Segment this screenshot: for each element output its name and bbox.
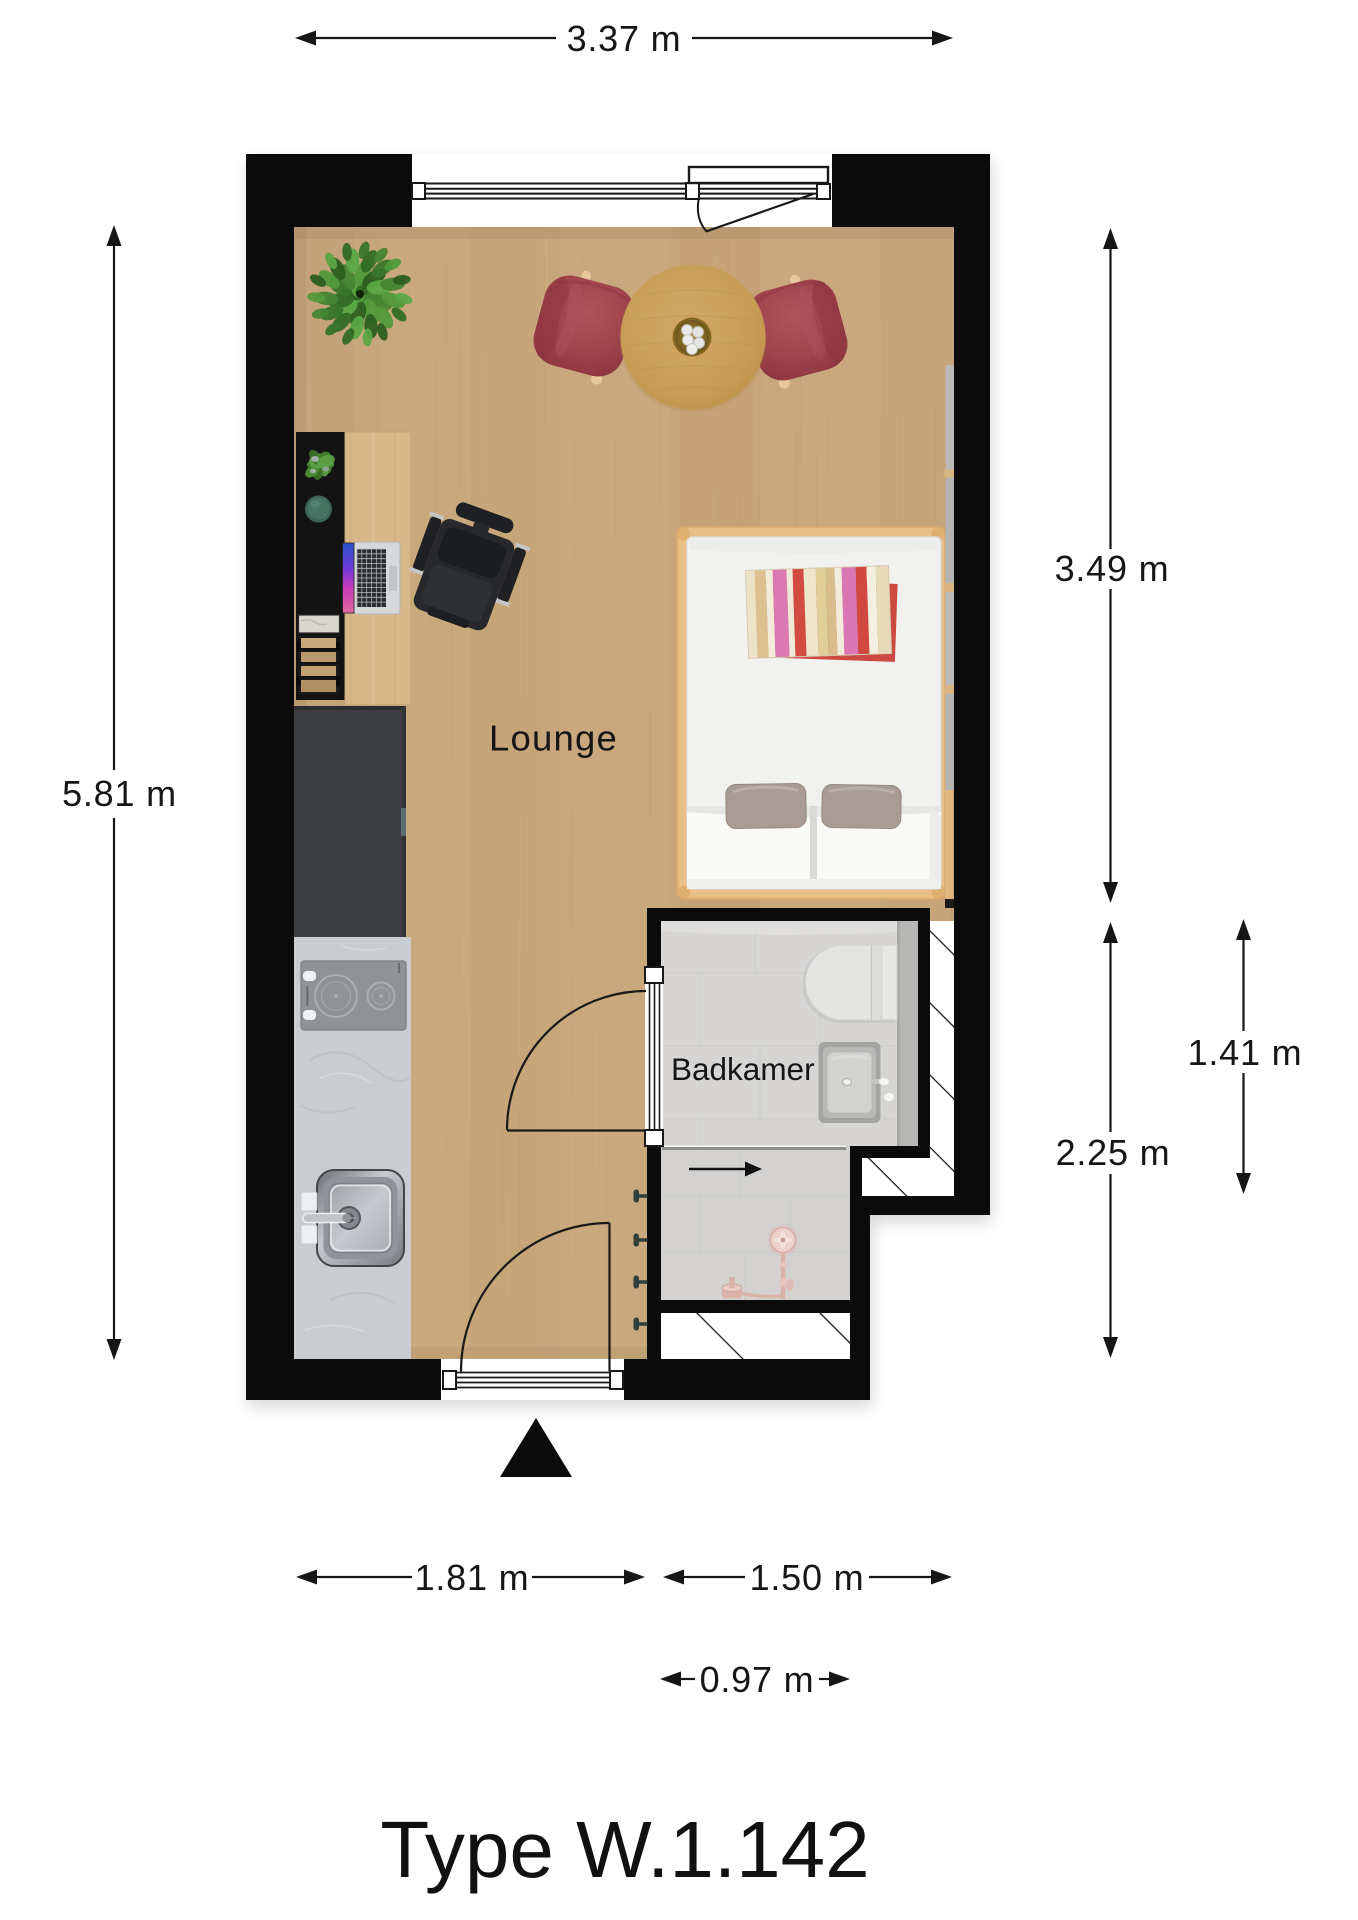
- svg-text:5.81 m: 5.81 m: [62, 773, 177, 814]
- svg-text:Lounge: Lounge: [489, 718, 618, 759]
- svg-text:Badkamer: Badkamer: [671, 1051, 815, 1087]
- svg-text:3.49 m: 3.49 m: [1055, 548, 1170, 589]
- svg-text:Type W.1.142: Type W.1.142: [380, 1805, 869, 1894]
- svg-text:2.25 m: 2.25 m: [1056, 1132, 1171, 1173]
- svg-text:1.41 m: 1.41 m: [1188, 1032, 1303, 1073]
- svg-text:3.37 m: 3.37 m: [567, 18, 682, 59]
- svg-text:0.97 m: 0.97 m: [700, 1659, 815, 1700]
- svg-text:1.81 m: 1.81 m: [415, 1557, 530, 1598]
- svg-text:1.50 m: 1.50 m: [750, 1557, 865, 1598]
